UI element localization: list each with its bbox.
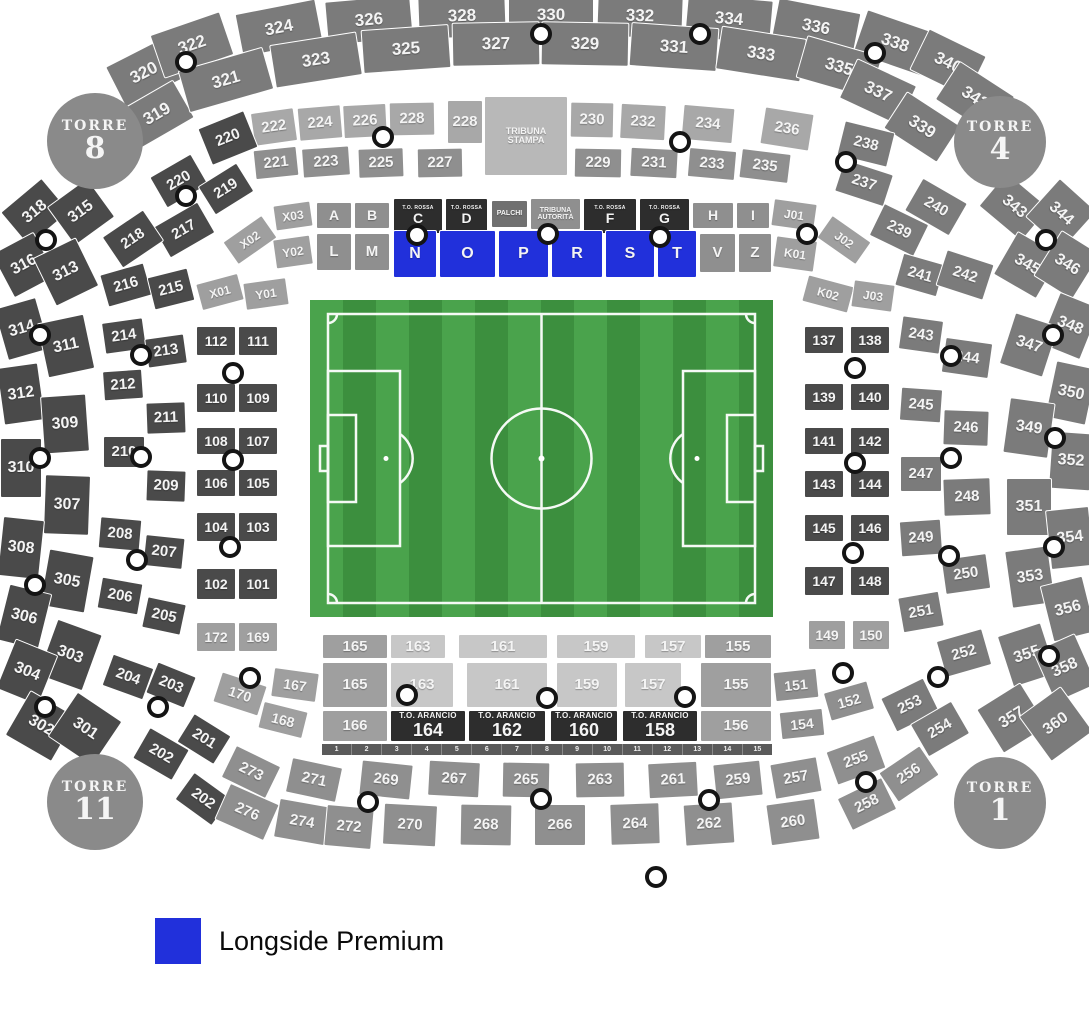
- section-J02[interactable]: J02: [816, 215, 871, 265]
- section-208[interactable]: 208: [98, 516, 143, 552]
- section-165b[interactable]: 165: [322, 662, 388, 708]
- section-149[interactable]: 149: [808, 620, 846, 650]
- section-169[interactable]: 169: [238, 622, 278, 652]
- row-number-cell: 11: [623, 744, 653, 755]
- section-243[interactable]: 243: [898, 315, 944, 355]
- section-257[interactable]: 257: [769, 756, 823, 800]
- section-206[interactable]: 206: [97, 577, 144, 616]
- row-number-cell: 12: [653, 744, 683, 755]
- gate-dot: [222, 362, 244, 384]
- gate-dot: [1038, 645, 1060, 667]
- section-260[interactable]: 260: [765, 798, 820, 847]
- gate-dot: [29, 324, 51, 346]
- section-172[interactable]: 172: [196, 622, 236, 652]
- section-S[interactable]: S: [605, 230, 655, 278]
- section-245[interactable]: 245: [899, 387, 943, 424]
- section-155b[interactable]: 155: [700, 662, 772, 708]
- section-312[interactable]: 312: [0, 362, 46, 425]
- section-137[interactable]: 137: [804, 326, 844, 354]
- section-205[interactable]: 205: [141, 596, 187, 636]
- section-219[interactable]: 219: [197, 162, 254, 215]
- gate-dot: [674, 686, 696, 708]
- section-V[interactable]: V: [699, 233, 736, 273]
- section-Y01[interactable]: Y01: [242, 277, 289, 311]
- section-247[interactable]: 247: [900, 456, 942, 492]
- gate-dot: [530, 788, 552, 810]
- section-159a[interactable]: 159: [556, 634, 636, 659]
- gate-dot: [864, 42, 886, 64]
- gate-dot: [796, 223, 818, 245]
- section-212[interactable]: 212: [102, 369, 144, 402]
- section-109[interactable]: 109: [238, 383, 278, 413]
- gate-dot: [175, 51, 197, 73]
- section-228a[interactable]: 228: [389, 102, 436, 137]
- gate-dot: [126, 549, 148, 571]
- row-number-cell: 6: [472, 744, 502, 755]
- gate-dot: [130, 344, 152, 366]
- row-number-cell: 8: [532, 744, 562, 755]
- section-R[interactable]: R: [551, 230, 603, 278]
- gate-dot: [130, 446, 152, 468]
- section-251[interactable]: 251: [897, 591, 945, 634]
- section-141[interactable]: 141: [804, 427, 844, 455]
- section-101[interactable]: 101: [238, 568, 278, 600]
- gate-dot: [938, 545, 960, 567]
- gate-dot: [357, 791, 379, 813]
- tower-1: TORRE1: [954, 757, 1046, 849]
- gate-dot: [537, 223, 559, 245]
- tower-4: TORRE4: [954, 96, 1046, 188]
- section-J03[interactable]: J03: [850, 279, 895, 313]
- section-233[interactable]: 233: [687, 147, 737, 181]
- row-number-cell: 10: [593, 744, 623, 755]
- section-261[interactable]: 261: [647, 761, 699, 800]
- football-pitch: [310, 300, 773, 617]
- tower-8: TORRE8: [47, 93, 143, 189]
- section-242[interactable]: 242: [935, 249, 994, 301]
- section-307[interactable]: 307: [43, 474, 91, 536]
- section-271[interactable]: 271: [285, 757, 343, 803]
- section-K02[interactable]: K02: [801, 274, 855, 313]
- section-228b[interactable]: 228: [447, 100, 483, 144]
- section-106[interactable]: 106: [196, 469, 236, 497]
- section-157b[interactable]: 157: [624, 662, 682, 708]
- section-232[interactable]: 232: [619, 103, 667, 141]
- section-227[interactable]: 227: [417, 148, 464, 179]
- section-159b[interactable]: 159: [556, 662, 618, 708]
- section-146[interactable]: 146: [850, 514, 890, 542]
- section-215[interactable]: 215: [147, 267, 196, 310]
- gate-dot: [34, 696, 56, 718]
- gate-dot: [669, 131, 691, 153]
- section-248[interactable]: 248: [942, 477, 991, 517]
- section-150[interactable]: 150: [852, 620, 890, 650]
- section-155a[interactable]: 155: [704, 634, 772, 659]
- gate-dot: [842, 542, 864, 564]
- section-163a[interactable]: 163: [390, 634, 446, 659]
- row-number-cell: 14: [713, 744, 743, 755]
- gate-dot: [855, 771, 877, 793]
- row-number-cell: 9: [563, 744, 593, 755]
- section-267[interactable]: 267: [427, 760, 481, 799]
- section-165a[interactable]: 165: [322, 634, 388, 659]
- legend: Longside Premium: [155, 918, 444, 964]
- section-158[interactable]: T.O. ARANCIO158: [622, 710, 698, 742]
- section-Y02[interactable]: Y02: [272, 235, 314, 270]
- section-152[interactable]: 152: [823, 680, 875, 722]
- section-140[interactable]: 140: [850, 383, 890, 411]
- gate-dot: [24, 574, 46, 596]
- section-235[interactable]: 235: [738, 148, 791, 184]
- gate-dot: [940, 345, 962, 367]
- section-151[interactable]: 151: [773, 668, 820, 702]
- section-B[interactable]: B: [354, 202, 390, 229]
- section-tribuna-stampa[interactable]: TRIBUNASTAMPA: [484, 96, 568, 176]
- gate-dot: [689, 23, 711, 45]
- section-154[interactable]: 154: [779, 708, 826, 740]
- gate-dot: [844, 357, 866, 379]
- gate-dot: [147, 696, 169, 718]
- section-246[interactable]: 246: [942, 409, 989, 447]
- section-156[interactable]: 156: [700, 710, 772, 742]
- section-311[interactable]: 311: [37, 314, 96, 379]
- row-number-cell: 2: [352, 744, 382, 755]
- section-270[interactable]: 270: [382, 803, 438, 848]
- section-268[interactable]: 268: [460, 804, 513, 847]
- gate-dot: [396, 684, 418, 706]
- section-230[interactable]: 230: [570, 102, 615, 139]
- row-number-cell: 13: [683, 744, 713, 755]
- legend-label: Longside Premium: [219, 926, 444, 957]
- section-216[interactable]: 216: [99, 262, 153, 307]
- section-105[interactable]: 105: [238, 469, 278, 497]
- section-356[interactable]: 356: [1040, 576, 1089, 643]
- section-168[interactable]: 168: [257, 701, 308, 739]
- section-263[interactable]: 263: [575, 762, 626, 799]
- section-103[interactable]: 103: [238, 512, 278, 542]
- section-309[interactable]: 309: [40, 393, 90, 454]
- section-160[interactable]: T.O. ARANCIO160: [550, 710, 618, 742]
- section-162[interactable]: T.O. ARANCIO162: [468, 710, 546, 742]
- section-217[interactable]: 217: [152, 201, 215, 258]
- section-211[interactable]: 211: [145, 401, 186, 434]
- section-266[interactable]: 266: [534, 804, 586, 846]
- gate-dot: [698, 789, 720, 811]
- row-number-cell: 7: [502, 744, 532, 755]
- gate-dot: [222, 449, 244, 471]
- row-number-cell: 4: [412, 744, 442, 755]
- row-number-cell: 3: [382, 744, 412, 755]
- gate-dot: [1043, 536, 1065, 558]
- stadium-seating-map: 3203223243263283303323343363383403423193…: [0, 0, 1089, 1032]
- section-349[interactable]: 349: [1002, 397, 1055, 459]
- section-148[interactable]: 148: [850, 566, 890, 596]
- section-X02[interactable]: X02: [222, 215, 277, 265]
- section-107[interactable]: 107: [238, 427, 278, 455]
- gate-dot: [1035, 229, 1057, 251]
- section-112[interactable]: 112: [196, 326, 236, 356]
- section-F[interactable]: T.O. ROSSAF: [583, 198, 637, 234]
- section-325[interactable]: 325: [361, 24, 452, 74]
- section-164[interactable]: T.O. ARANCIO164: [390, 710, 466, 742]
- gate-dot: [372, 126, 394, 148]
- row-number-cell: 1: [322, 744, 352, 755]
- section-221[interactable]: 221: [253, 146, 300, 180]
- section-102[interactable]: 102: [196, 568, 236, 600]
- section-308[interactable]: 308: [0, 516, 45, 580]
- section-249[interactable]: 249: [899, 519, 943, 558]
- section-147[interactable]: 147: [804, 566, 844, 596]
- gate-dot: [406, 224, 428, 246]
- section-222[interactable]: 222: [250, 107, 298, 147]
- section-L[interactable]: L: [316, 233, 352, 271]
- gate-dot: [219, 536, 241, 558]
- gate-dot: [530, 23, 552, 45]
- section-209[interactable]: 209: [145, 469, 186, 502]
- section-143[interactable]: 143: [804, 470, 844, 498]
- section-329[interactable]: 329: [541, 21, 630, 67]
- section-O[interactable]: O: [439, 230, 496, 278]
- section-351[interactable]: 351: [1006, 478, 1052, 536]
- section-264[interactable]: 264: [609, 802, 660, 846]
- gate-dot: [29, 447, 51, 469]
- gate-dot: [835, 151, 857, 173]
- row-number-strip: 123456789101112131415: [322, 744, 772, 755]
- section-157a[interactable]: 157: [644, 634, 702, 659]
- gate-dot: [239, 667, 261, 689]
- section-111[interactable]: 111: [238, 326, 278, 356]
- legend-swatch: [155, 918, 201, 964]
- section-223[interactable]: 223: [301, 145, 351, 178]
- section-X01[interactable]: X01: [195, 273, 245, 311]
- gate-dot: [175, 185, 197, 207]
- section-207[interactable]: 207: [142, 534, 185, 570]
- section-Z[interactable]: Z: [738, 233, 772, 273]
- section-231[interactable]: 231: [629, 147, 679, 179]
- section-X03[interactable]: X03: [272, 200, 313, 231]
- section-161a[interactable]: 161: [458, 634, 548, 659]
- section-236[interactable]: 236: [759, 106, 814, 151]
- section-110[interactable]: 110: [196, 383, 236, 413]
- gate-dot: [536, 687, 558, 709]
- section-259[interactable]: 259: [712, 760, 764, 801]
- gate-dot: [1044, 427, 1066, 449]
- gate-dot: [927, 666, 949, 688]
- section-D[interactable]: T.O. ROSSAD: [445, 198, 488, 234]
- section-224[interactable]: 224: [297, 104, 344, 142]
- section-327[interactable]: 327: [452, 21, 541, 67]
- gate-dot: [1042, 324, 1064, 346]
- row-number-cell: 5: [442, 744, 472, 755]
- section-palchi[interactable]: PALCHI: [491, 200, 528, 228]
- gate-dot: [832, 662, 854, 684]
- section-167[interactable]: 167: [270, 667, 320, 703]
- section-220a[interactable]: 220: [197, 110, 258, 166]
- gate-dot: [35, 229, 57, 251]
- section-A[interactable]: A: [316, 202, 352, 229]
- gate-dot: [645, 866, 667, 888]
- section-139[interactable]: 139: [804, 383, 844, 411]
- section-274[interactable]: 274: [273, 798, 331, 846]
- row-number-cell: 15: [743, 744, 772, 755]
- section-138[interactable]: 138: [850, 326, 890, 354]
- gate-dot: [844, 452, 866, 474]
- section-276[interactable]: 276: [214, 783, 280, 842]
- section-M[interactable]: M: [354, 233, 390, 271]
- section-225[interactable]: 225: [357, 147, 404, 179]
- section-229[interactable]: 229: [574, 148, 623, 179]
- gate-dot: [649, 226, 671, 248]
- section-142[interactable]: 142: [850, 427, 890, 455]
- section-H[interactable]: H: [692, 202, 734, 229]
- section-144[interactable]: 144: [850, 470, 890, 498]
- section-306[interactable]: 306: [0, 584, 52, 651]
- section-I[interactable]: I: [736, 202, 770, 229]
- section-145[interactable]: 145: [804, 514, 844, 542]
- section-166[interactable]: 166: [322, 710, 388, 742]
- gate-dot: [940, 447, 962, 469]
- tower-11: TORRE11: [47, 754, 143, 850]
